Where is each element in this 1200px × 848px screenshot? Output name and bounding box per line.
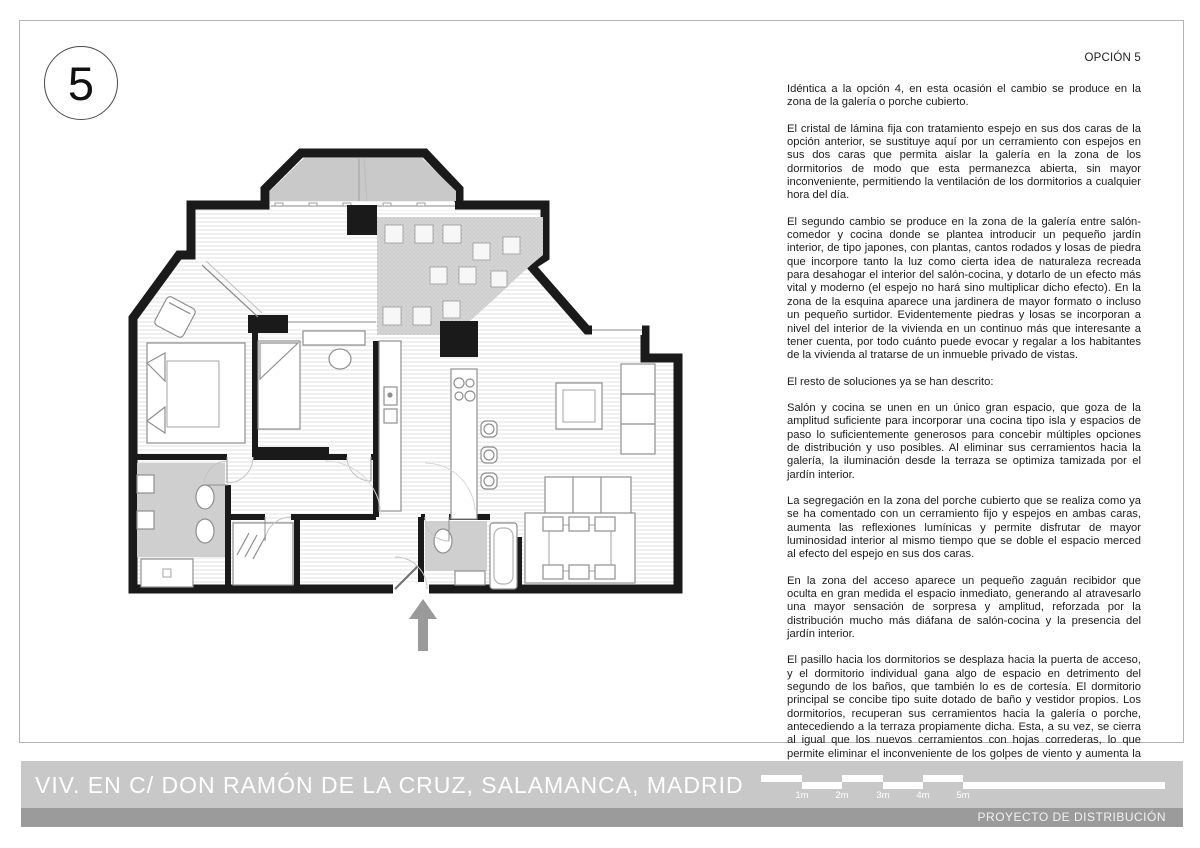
scale-label: 5m xyxy=(956,790,969,801)
bay-terrace xyxy=(270,158,456,201)
option-label: OPCIÓN 5 xyxy=(787,52,1141,64)
scale-segment xyxy=(842,775,883,782)
scale-segment xyxy=(963,782,1165,789)
scale-segment xyxy=(923,775,963,782)
project-title: VIV. EN C/ DON RAMÓN DE LA CRUZ, SALAMAN… xyxy=(35,761,744,808)
entrance-arrow-icon xyxy=(409,599,437,651)
paragraph: El pasillo hacia los dormitorios se desp… xyxy=(787,654,1141,774)
closet xyxy=(233,523,293,585)
single-bed xyxy=(258,341,300,429)
floor-plan xyxy=(125,125,695,670)
island-stools xyxy=(481,421,497,489)
option-number: 5 xyxy=(68,56,94,111)
scale-segment xyxy=(802,782,842,789)
scale-segment xyxy=(883,782,923,789)
living-rug xyxy=(556,383,602,429)
description-column: OPCIÓN 5 Idéntica a la opción 4, en esta… xyxy=(787,52,1141,787)
footer-subtitle-band: PROYECTO DE DISTRIBUCIÓN xyxy=(21,808,1183,827)
project-subtitle: PROYECTO DE DISTRIBUCIÓN xyxy=(978,808,1166,827)
option-number-badge: 5 xyxy=(44,46,118,120)
paragraph: El resto de soluciones ya se han descrit… xyxy=(787,376,1141,389)
scale-label: 3m xyxy=(876,790,889,801)
dining-table xyxy=(525,513,635,583)
sofa-right xyxy=(621,364,655,454)
paragraph: Salón y cocina se unen en un único gran … xyxy=(787,402,1141,482)
floor-plan-drawing xyxy=(125,125,695,670)
sofa-bottom xyxy=(545,477,631,515)
kitchen-counter xyxy=(379,341,401,511)
paragraph: En la zona del acceso aparece un pequeño… xyxy=(787,575,1141,642)
scale-label: 1m xyxy=(795,790,808,801)
kitchen-island xyxy=(451,369,477,519)
paragraph: El segundo cambio se produce en la zona … xyxy=(787,216,1141,363)
scale-label: 4m xyxy=(916,790,929,801)
paragraph: El cristal de lámina fija con tratamient… xyxy=(787,123,1141,203)
master-bed xyxy=(147,343,245,443)
paragraph: La segregación en la zona del porche cub… xyxy=(787,495,1141,562)
living-window xyxy=(592,325,642,335)
paragraph: Idéntica a la opción 4, en esta ocasión … xyxy=(787,83,1141,110)
scale-label: 2m xyxy=(835,790,848,801)
scale-segment xyxy=(761,775,802,782)
